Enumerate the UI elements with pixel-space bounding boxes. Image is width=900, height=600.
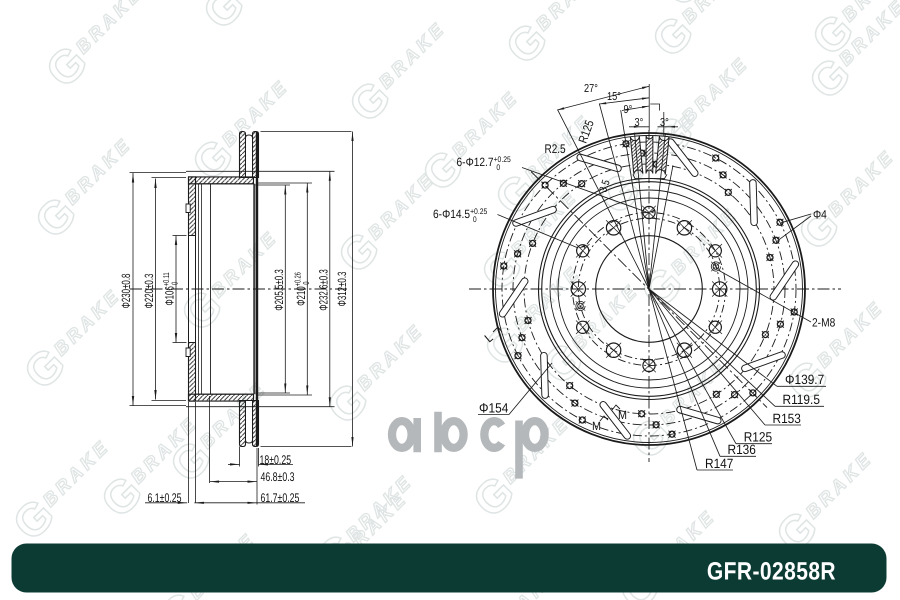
- svg-text:61.7±0.25: 61.7±0.25: [261, 491, 300, 505]
- svg-text:R136: R136: [728, 442, 756, 457]
- svg-text:27°: 27°: [584, 83, 598, 95]
- svg-text:18±0.25: 18±0.25: [260, 453, 292, 467]
- svg-text:R119.5: R119.5: [783, 392, 820, 407]
- svg-text:Φ4: Φ4: [813, 208, 827, 222]
- svg-text:GFR-02858R: GFR-02858R: [707, 558, 836, 586]
- svg-text:3°: 3°: [660, 117, 669, 129]
- svg-text:Φ220±0.3: Φ220±0.3: [142, 273, 156, 308]
- svg-text:Φ139.7: Φ139.7: [785, 372, 824, 387]
- svg-text:6.1±0.25: 6.1±0.25: [148, 491, 182, 505]
- svg-text:R2.5: R2.5: [545, 142, 566, 156]
- svg-text:46.8±0.3: 46.8±0.3: [261, 470, 295, 484]
- svg-text:Φ232.6±0.3: Φ232.6±0.3: [317, 269, 331, 311]
- svg-text:Φ230±0.8: Φ230±0.8: [119, 273, 133, 308]
- svg-text:Φ312±0.3: Φ312±0.3: [335, 271, 349, 306]
- svg-text:R147: R147: [705, 456, 733, 471]
- svg-text:M: M: [592, 419, 601, 433]
- svg-text:3°: 3°: [635, 117, 644, 129]
- svg-text:2-M8: 2-M8: [812, 316, 836, 330]
- svg-text:Φ205.5±0.3: Φ205.5±0.3: [272, 269, 286, 311]
- svg-text:R153: R153: [773, 411, 801, 426]
- svg-text:Φ154: Φ154: [479, 401, 509, 416]
- svg-text:9°: 9°: [624, 104, 633, 116]
- svg-text:M: M: [618, 408, 627, 422]
- svg-text:15°: 15°: [607, 91, 621, 103]
